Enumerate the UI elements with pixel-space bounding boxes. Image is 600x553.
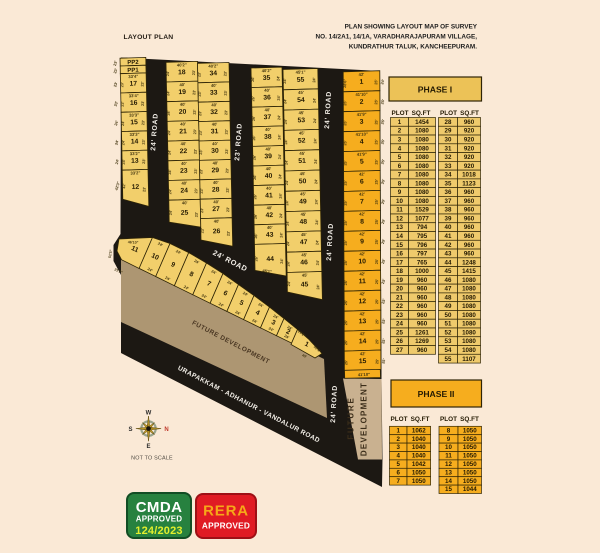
svg-text:24': 24' <box>278 154 282 159</box>
svg-text:960: 960 <box>464 189 475 196</box>
svg-text:960: 960 <box>464 242 475 249</box>
svg-text:24: 24 <box>180 187 188 194</box>
svg-text:25': 25' <box>375 339 379 344</box>
svg-text:23': 23' <box>201 228 205 233</box>
svg-text:SQ.FT: SQ.FT <box>460 416 479 423</box>
svg-text:40': 40' <box>181 181 187 186</box>
svg-text:3: 3 <box>398 137 402 144</box>
svg-text:14: 14 <box>396 233 403 240</box>
svg-text:24': 24' <box>276 76 280 81</box>
svg-text:16: 16 <box>130 100 138 107</box>
svg-text:960: 960 <box>464 215 475 222</box>
svg-text:24': 24' <box>284 139 288 144</box>
svg-text:RERA: RERA <box>203 503 249 520</box>
svg-text:3: 3 <box>360 119 364 126</box>
svg-text:LAYOUT PLAN: LAYOUT PLAN <box>124 34 174 41</box>
svg-text:32: 32 <box>210 109 218 116</box>
svg-text:24': 24' <box>314 179 318 184</box>
svg-text:40': 40' <box>182 200 188 205</box>
svg-text:22: 22 <box>396 303 403 310</box>
svg-text:23': 23' <box>225 129 229 134</box>
svg-text:960: 960 <box>417 294 428 301</box>
svg-text:46'10": 46'10" <box>128 240 139 245</box>
svg-text:23': 23' <box>195 212 199 217</box>
svg-text:45': 45' <box>302 273 308 278</box>
svg-text:920: 920 <box>464 145 475 152</box>
svg-text:26': 26' <box>251 77 255 82</box>
svg-text:13: 13 <box>396 224 403 231</box>
svg-text:23': 23' <box>223 71 227 76</box>
svg-text:49: 49 <box>445 303 452 310</box>
svg-text:13: 13 <box>359 318 367 325</box>
svg-text:794: 794 <box>417 224 428 231</box>
svg-text:53: 53 <box>445 338 452 345</box>
svg-text:45': 45' <box>300 171 306 176</box>
svg-text:PLAN SHOWING LAYOUT MAP OF SUR: PLAN SHOWING LAYOUT MAP OF SURVEY <box>345 24 478 31</box>
svg-text:24': 24' <box>313 118 317 123</box>
svg-text:34: 34 <box>445 172 452 179</box>
svg-text:15: 15 <box>396 242 403 249</box>
svg-text:49: 49 <box>299 198 307 205</box>
svg-text:47: 47 <box>445 286 452 293</box>
svg-text:26: 26 <box>396 338 403 345</box>
svg-text:24': 24' <box>287 261 291 266</box>
svg-text:7: 7 <box>398 172 402 179</box>
svg-text:24': 24' <box>287 281 291 286</box>
svg-text:14: 14 <box>131 138 139 145</box>
svg-text:23': 23' <box>226 207 230 212</box>
svg-text:10: 10 <box>445 444 452 451</box>
svg-text:23': 23' <box>192 70 196 75</box>
svg-text:23': 23' <box>225 149 229 154</box>
svg-text:46: 46 <box>300 259 308 266</box>
svg-text:29: 29 <box>445 128 452 135</box>
svg-text:1050: 1050 <box>463 427 477 434</box>
svg-text:PLOT: PLOT <box>440 416 457 423</box>
svg-text:28: 28 <box>445 119 452 126</box>
svg-text:4: 4 <box>398 145 402 152</box>
svg-text:1080: 1080 <box>462 312 476 319</box>
svg-text:23': 23' <box>198 91 202 96</box>
svg-text:24': 24' <box>316 284 320 289</box>
svg-text:1050: 1050 <box>412 478 426 485</box>
svg-text:23': 23' <box>199 149 203 154</box>
svg-text:1040: 1040 <box>412 453 426 460</box>
svg-text:13: 13 <box>445 469 452 476</box>
svg-text:33'4": 33'4" <box>129 93 139 98</box>
svg-text:25': 25' <box>343 160 347 165</box>
svg-text:41'9": 41'9" <box>357 112 367 117</box>
svg-text:24': 24' <box>312 77 316 82</box>
svg-text:15: 15 <box>359 358 367 365</box>
svg-text:40': 40' <box>181 161 187 166</box>
svg-text:7: 7 <box>360 198 364 205</box>
svg-text:24': 24' <box>279 193 283 198</box>
svg-text:24': 24' <box>314 159 318 164</box>
svg-text:29: 29 <box>211 167 219 174</box>
svg-text:24': 24' <box>167 130 171 135</box>
svg-text:25': 25' <box>344 360 348 365</box>
svg-text:1248: 1248 <box>462 259 476 266</box>
svg-text:797: 797 <box>417 251 428 258</box>
svg-text:48: 48 <box>445 294 452 301</box>
svg-text:1080: 1080 <box>415 198 429 205</box>
svg-text:2: 2 <box>360 99 364 106</box>
svg-text:23': 23' <box>142 187 146 192</box>
svg-text:1529: 1529 <box>415 207 429 214</box>
svg-text:13: 13 <box>131 158 139 165</box>
svg-text:40'2": 40'2" <box>208 63 218 68</box>
svg-text:40': 40' <box>213 199 219 204</box>
svg-text:25': 25' <box>374 99 378 104</box>
svg-text:26': 26' <box>253 175 257 180</box>
svg-text:25': 25' <box>343 140 347 145</box>
svg-text:1080: 1080 <box>415 163 429 170</box>
svg-text:1050: 1050 <box>412 469 426 476</box>
svg-text:4: 4 <box>396 453 400 460</box>
svg-text:920: 920 <box>464 137 475 144</box>
svg-text:12: 12 <box>132 184 140 191</box>
svg-text:44: 44 <box>445 259 452 266</box>
svg-text:1050: 1050 <box>463 469 477 476</box>
svg-text:1454: 1454 <box>415 119 429 126</box>
svg-text:42: 42 <box>445 242 452 249</box>
svg-text:960: 960 <box>417 312 428 319</box>
svg-text:4: 4 <box>360 139 364 146</box>
svg-text:24': 24' <box>313 138 317 143</box>
svg-text:23': 23' <box>199 130 203 135</box>
svg-text:25': 25' <box>343 100 347 105</box>
svg-text:796: 796 <box>417 242 428 249</box>
svg-text:24': 24' <box>280 232 284 237</box>
svg-text:23': 23' <box>226 187 230 192</box>
svg-text:45': 45' <box>300 212 306 217</box>
svg-text:PLOT: PLOT <box>391 110 408 117</box>
svg-text:40': 40' <box>214 219 220 224</box>
svg-text:1044: 1044 <box>463 486 477 493</box>
svg-text:11: 11 <box>396 207 403 214</box>
svg-text:42': 42' <box>359 231 365 236</box>
svg-text:23': 23' <box>225 168 229 173</box>
svg-text:52: 52 <box>445 329 452 336</box>
svg-text:19: 19 <box>178 89 186 96</box>
svg-text:1080: 1080 <box>415 154 429 161</box>
svg-text:19: 19 <box>396 277 403 284</box>
svg-text:42': 42' <box>359 291 365 296</box>
svg-text:960: 960 <box>464 251 475 258</box>
svg-text:PHASE I: PHASE I <box>418 85 452 95</box>
svg-text:24': 24' <box>315 199 319 204</box>
svg-text:24': 24' <box>284 119 288 124</box>
svg-text:24': 24' <box>286 241 290 246</box>
svg-text:124/2023: 124/2023 <box>135 525 182 537</box>
svg-text:37: 37 <box>445 198 452 205</box>
svg-text:20: 20 <box>396 286 403 293</box>
svg-text:25: 25 <box>396 329 403 336</box>
svg-text:38: 38 <box>264 134 272 141</box>
svg-text:25': 25' <box>344 260 348 265</box>
svg-text:41'10": 41'10" <box>358 372 370 377</box>
svg-text:33'3": 33'3" <box>129 112 139 117</box>
svg-text:1080: 1080 <box>462 294 476 301</box>
svg-text:24': 24' <box>285 200 289 205</box>
svg-text:25': 25' <box>344 280 348 285</box>
svg-text:45': 45' <box>299 151 305 156</box>
svg-text:24': 24' <box>283 78 287 83</box>
svg-text:6: 6 <box>360 179 364 186</box>
svg-text:12: 12 <box>396 215 403 222</box>
svg-text:24': 24' <box>168 169 172 174</box>
svg-text:21: 21 <box>179 128 187 135</box>
svg-text:50: 50 <box>445 312 452 319</box>
svg-text:1080: 1080 <box>415 137 429 144</box>
svg-text:23': 23' <box>192 90 196 95</box>
svg-text:APPROVED: APPROVED <box>202 521 250 531</box>
svg-text:1050: 1050 <box>463 461 477 468</box>
svg-text:26': 26' <box>254 256 258 261</box>
svg-text:25': 25' <box>375 359 379 364</box>
svg-text:25': 25' <box>375 219 379 224</box>
svg-text:23': 23' <box>141 101 145 106</box>
svg-text:24': 24' <box>279 213 283 218</box>
svg-text:8: 8 <box>360 218 364 225</box>
svg-text:1050: 1050 <box>463 444 477 451</box>
svg-text:26': 26' <box>252 116 256 121</box>
svg-text:23: 23 <box>396 312 403 319</box>
svg-text:1080: 1080 <box>462 338 476 345</box>
svg-text:22: 22 <box>180 148 188 155</box>
svg-text:1: 1 <box>398 119 402 126</box>
svg-text:27: 27 <box>396 347 403 354</box>
svg-text:47: 47 <box>300 239 308 246</box>
svg-text:1080: 1080 <box>415 128 429 135</box>
svg-text:960: 960 <box>464 119 475 126</box>
svg-text:24': 24' <box>166 71 170 76</box>
svg-text:51: 51 <box>445 321 452 328</box>
svg-text:14: 14 <box>445 478 452 485</box>
svg-text:25': 25' <box>375 199 379 204</box>
svg-text:25': 25' <box>374 139 378 144</box>
svg-text:1040: 1040 <box>412 436 426 443</box>
svg-text:26': 26' <box>253 194 257 199</box>
svg-text:960: 960 <box>464 207 475 214</box>
svg-text:795: 795 <box>417 233 428 240</box>
svg-text:40: 40 <box>445 224 452 231</box>
svg-text:18: 18 <box>178 69 186 76</box>
svg-text:40': 40' <box>264 88 270 93</box>
svg-text:45: 45 <box>445 268 452 275</box>
svg-text:23': 23' <box>197 72 201 77</box>
svg-text:40': 40' <box>265 107 271 112</box>
svg-text:9: 9 <box>398 189 402 196</box>
svg-text:40': 40' <box>211 83 217 88</box>
svg-text:APPROVED: APPROVED <box>136 515 183 524</box>
svg-text:42': 42' <box>359 271 365 276</box>
svg-text:24': 24' <box>166 91 170 96</box>
svg-text:23': 23' <box>224 90 228 95</box>
svg-text:23': 23' <box>227 231 231 236</box>
svg-text:39: 39 <box>445 215 452 222</box>
svg-text:40': 40' <box>212 141 218 146</box>
svg-text:35: 35 <box>263 75 271 82</box>
svg-text:45': 45' <box>299 130 305 135</box>
svg-text:24': 24' <box>315 240 319 245</box>
svg-text:27: 27 <box>212 206 220 213</box>
svg-text:25': 25' <box>375 259 379 264</box>
svg-text:45': 45' <box>301 252 307 257</box>
svg-text:43: 43 <box>266 232 274 239</box>
svg-text:41'10": 41'10" <box>356 131 368 136</box>
svg-text:1080: 1080 <box>462 277 476 284</box>
svg-text:40': 40' <box>265 127 271 132</box>
svg-text:55: 55 <box>297 77 305 84</box>
svg-text:E: E <box>146 444 150 450</box>
svg-text:20: 20 <box>179 109 187 116</box>
svg-text:PHASE II: PHASE II <box>418 389 455 399</box>
svg-text:1080: 1080 <box>462 286 476 293</box>
svg-text:1415: 1415 <box>462 268 476 275</box>
svg-text:15: 15 <box>445 486 452 493</box>
svg-text:5: 5 <box>360 159 364 166</box>
svg-text:33'4": 33'4" <box>128 74 138 79</box>
svg-text:40': 40' <box>180 121 186 126</box>
svg-text:40'2": 40'2" <box>177 62 187 67</box>
svg-text:1080: 1080 <box>415 189 429 196</box>
svg-text:960: 960 <box>417 303 428 310</box>
svg-text:25': 25' <box>343 120 347 125</box>
svg-text:40': 40' <box>213 180 219 185</box>
svg-text:23': 23' <box>194 168 198 173</box>
svg-text:6: 6 <box>398 163 402 170</box>
svg-text:23': 23' <box>200 208 204 213</box>
svg-text:2: 2 <box>396 436 400 443</box>
svg-text:23': 23' <box>224 110 228 115</box>
svg-text:16: 16 <box>396 251 403 258</box>
svg-text:NOT TO SCALE: NOT TO SCALE <box>131 456 173 462</box>
svg-text:23': 23' <box>141 81 145 86</box>
svg-text:31: 31 <box>211 128 219 135</box>
svg-text:34: 34 <box>209 70 217 77</box>
svg-text:28'6": 28'6" <box>343 78 347 87</box>
svg-text:40': 40' <box>265 146 271 151</box>
svg-text:40': 40' <box>212 160 218 165</box>
svg-text:48: 48 <box>299 219 307 226</box>
svg-text:9: 9 <box>360 238 364 245</box>
svg-text:24': 24' <box>280 258 284 263</box>
svg-text:KUNDRATHUR TALUK, KANCHEEPURAM: KUNDRATHUR TALUK, KANCHEEPURAM. <box>349 43 478 50</box>
svg-text:1080: 1080 <box>462 347 476 354</box>
svg-text:PLOT: PLOT <box>440 110 457 117</box>
svg-text:10: 10 <box>396 198 403 205</box>
svg-text:24': 24' <box>313 98 317 103</box>
svg-text:14: 14 <box>359 338 367 345</box>
svg-text:33'2": 33'2" <box>130 151 140 156</box>
svg-text:1077: 1077 <box>415 215 429 222</box>
svg-text:1261: 1261 <box>415 329 429 336</box>
svg-text:53: 53 <box>297 117 305 124</box>
svg-text:1062: 1062 <box>412 427 426 434</box>
svg-text:25': 25' <box>344 340 348 345</box>
svg-text:1050: 1050 <box>463 453 477 460</box>
svg-text:42': 42' <box>359 211 365 216</box>
svg-text:9: 9 <box>447 436 451 443</box>
svg-text:25': 25' <box>375 179 379 184</box>
svg-text:5: 5 <box>396 461 400 468</box>
svg-text:40': 40' <box>266 166 272 171</box>
svg-text:45': 45' <box>301 232 307 237</box>
svg-text:40'2": 40'2" <box>262 68 272 73</box>
svg-text:24': 24' <box>121 121 125 126</box>
svg-text:52: 52 <box>298 137 306 144</box>
svg-text:28: 28 <box>212 186 220 193</box>
svg-text:1018: 1018 <box>462 172 476 179</box>
svg-text:40': 40' <box>181 141 187 146</box>
svg-text:DEVELOPMENT: DEVELOPMENT <box>360 382 369 456</box>
svg-text:25': 25' <box>375 279 379 284</box>
svg-text:23': 23' <box>193 129 197 134</box>
svg-text:11: 11 <box>445 453 452 460</box>
svg-text:41: 41 <box>265 192 273 199</box>
svg-text:FUTURE: FUTURE <box>347 396 356 439</box>
svg-text:54: 54 <box>445 347 452 354</box>
svg-text:45': 45' <box>298 90 304 95</box>
svg-text:40: 40 <box>265 173 273 180</box>
svg-text:25': 25' <box>344 180 348 185</box>
svg-text:26': 26' <box>254 214 258 219</box>
svg-text:23': 23' <box>194 188 198 193</box>
svg-text:1123: 1123 <box>462 180 476 187</box>
svg-text:40': 40' <box>267 225 273 230</box>
svg-text:41: 41 <box>445 233 452 240</box>
svg-text:39: 39 <box>264 153 272 160</box>
svg-text:960: 960 <box>464 198 475 205</box>
svg-text:24': 24' <box>285 180 289 185</box>
svg-text:25: 25 <box>181 210 189 217</box>
svg-text:26': 26' <box>253 155 257 160</box>
svg-text:24': 24' <box>286 221 290 226</box>
svg-text:960: 960 <box>417 277 428 284</box>
svg-text:1080: 1080 <box>462 303 476 310</box>
svg-text:24': 24' <box>277 95 281 100</box>
svg-text:5: 5 <box>398 154 402 161</box>
svg-text:40': 40' <box>211 102 217 107</box>
svg-text:12: 12 <box>358 298 366 305</box>
svg-text:23': 23' <box>194 149 198 154</box>
svg-text:40': 40' <box>212 122 218 127</box>
svg-text:50: 50 <box>299 178 307 185</box>
svg-text:11: 11 <box>359 278 367 285</box>
svg-text:765: 765 <box>417 259 428 266</box>
svg-text:51: 51 <box>298 158 306 165</box>
svg-text:24': 24' <box>316 260 320 265</box>
svg-text:PLOT: PLOT <box>390 416 407 423</box>
svg-text:1080: 1080 <box>415 172 429 179</box>
svg-text:40': 40' <box>266 205 272 210</box>
svg-text:N: N <box>164 427 168 433</box>
svg-text:1: 1 <box>359 79 363 86</box>
svg-text:24: 24 <box>396 321 403 328</box>
svg-text:23': 23' <box>121 101 125 106</box>
svg-text:23: 23 <box>180 168 188 175</box>
svg-text:24': 24' <box>169 210 173 215</box>
svg-text:40': 40' <box>179 82 185 87</box>
svg-text:1: 1 <box>396 427 400 434</box>
svg-text:25': 25' <box>344 200 348 205</box>
svg-text:33'3": 33'3" <box>129 132 139 137</box>
svg-text:24': 24' <box>121 140 125 145</box>
svg-text:24': 24' <box>168 150 172 155</box>
svg-text:44: 44 <box>266 256 274 263</box>
